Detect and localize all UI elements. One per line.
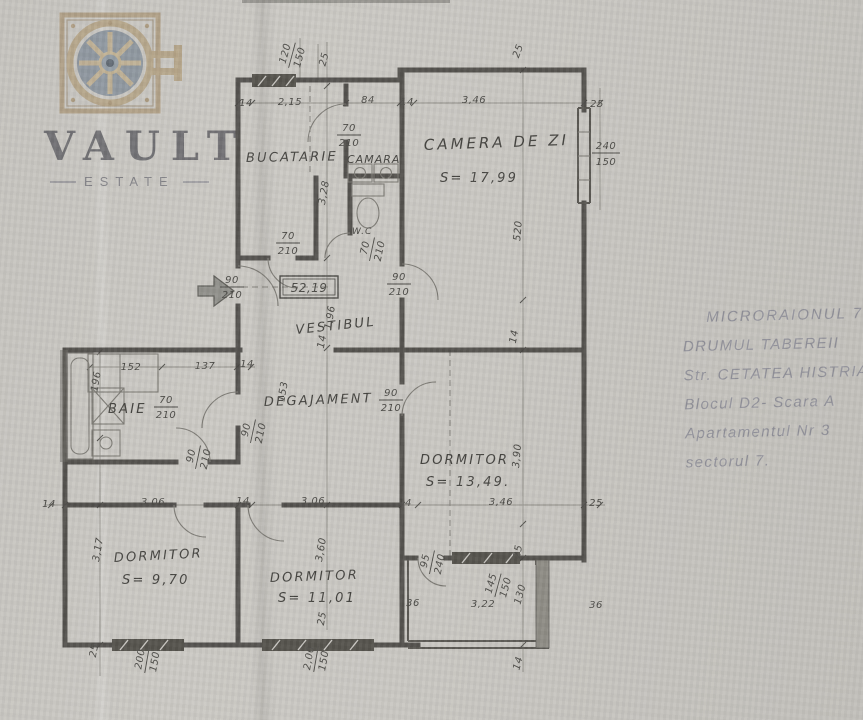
dim-balcony-36-right: 36 <box>589 600 603 611</box>
dim-dorm2-wall-25: 25 <box>316 611 329 626</box>
dim-top-25-right: 25 <box>511 43 526 60</box>
balcony-right-wall <box>536 560 549 648</box>
dim-bottom-6: 25 <box>589 498 603 509</box>
dim-kitchen-door: 70 210 <box>276 231 300 257</box>
room-area-dormitor3: S= 13,49. <box>426 475 510 490</box>
room-area-dormitor2: S= 11,01 <box>278 591 356 606</box>
room-labels: BUCATARIE CAMARA CAMERA DE ZI S= 17,99 W… <box>108 131 569 606</box>
note-line: sectorul 7. <box>685 444 863 478</box>
dim-baie-door: 70 210 <box>154 395 178 421</box>
dim-balcony-width: 3,22 <box>471 599 495 610</box>
svg-text:210: 210 <box>222 290 243 301</box>
room-label-bucatarie: BUCATARIE <box>246 149 338 166</box>
dim-dorm2-door: 90 210 <box>239 417 269 446</box>
dim-dorm1-depth: 3,17 <box>91 537 106 563</box>
dim-top-2: 84 <box>361 95 375 106</box>
dim-top-3: 14 <box>400 97 414 108</box>
dim-mid-0: 152 <box>121 362 142 373</box>
dim-top-25-left: 25 <box>317 51 331 67</box>
wall-hatch <box>60 350 68 462</box>
dim-right-wall-14: 14 <box>508 329 521 344</box>
dim-dorm3-door: 90 210 <box>379 388 403 414</box>
svg-text:90: 90 <box>384 388 398 399</box>
svg-text:150: 150 <box>292 46 308 69</box>
svg-text:210: 210 <box>278 246 299 257</box>
dim-mid-2: 14 <box>240 359 254 370</box>
bath-fixture <box>92 430 120 456</box>
svg-text:240: 240 <box>433 553 448 575</box>
note-line: Apartamentul Nr 3 <box>685 415 863 449</box>
dim-dorm1-door: 90 210 <box>184 443 214 472</box>
dim-bottom-3: 3,06 <box>301 496 325 507</box>
dim-right-window: 240 150 <box>592 141 620 168</box>
svg-text:90: 90 <box>185 448 199 464</box>
handwritten-address-notes: MICRORAIONUL 7 DRUMUL TABEREII Str. CETA… <box>682 299 863 478</box>
scanned-floor-plan-page: VAULT ESTATE <box>0 0 863 720</box>
svg-text:70: 70 <box>159 395 173 406</box>
dim-wc-door: 70 210 <box>358 235 388 264</box>
svg-text:120: 120 <box>278 42 294 65</box>
fixtures <box>60 164 398 462</box>
dim-bottom-5: 3,46 <box>489 497 513 508</box>
dim-bottom-2: 14 <box>236 496 250 507</box>
room-label-wc: W.C <box>352 227 372 237</box>
svg-text:90: 90 <box>225 275 239 286</box>
dim-kitchen-depth: 3,28 <box>317 180 332 206</box>
dim-camara-door: 70 210 <box>337 123 361 149</box>
dim-balcony-window: 145 150 <box>483 571 514 601</box>
svg-text:210: 210 <box>199 448 214 470</box>
dim-vestibul-wall: 14 <box>316 334 329 349</box>
dim-top-window: 120 150 <box>277 40 309 72</box>
dim-balcony-25: 25 <box>512 544 525 559</box>
dim-bottom-4: 14 <box>398 498 412 509</box>
room-label-dormitor3: DORMITOR <box>420 453 509 468</box>
dim-top-4: 3,46 <box>462 95 486 106</box>
svg-text:95: 95 <box>419 553 433 569</box>
svg-text:210: 210 <box>373 240 388 262</box>
room-area-dormitor1: S= 9,70 <box>122 573 190 588</box>
svg-text:210: 210 <box>381 403 402 414</box>
svg-text:210: 210 <box>156 410 177 421</box>
room-area-camera-de-zi: S= 17,99 <box>440 171 518 186</box>
svg-text:210: 210 <box>389 287 410 298</box>
note-line: Str. CETATEA HISTRIA <box>683 357 863 391</box>
dim-dorm1-wall-25: 25 <box>88 643 101 658</box>
svg-text:210: 210 <box>254 422 269 444</box>
toilet-tank <box>352 184 384 196</box>
dim-balcony-14: 14 <box>511 655 525 671</box>
dim-mid-1: 137 <box>195 361 216 372</box>
dim-living-door: 90 210 <box>387 272 411 298</box>
dim-top-1: 2,15 <box>278 97 302 108</box>
dim-living-height: 520 <box>512 220 525 241</box>
svg-text:150: 150 <box>596 157 617 168</box>
dim-balcony-depth: 130 <box>513 583 529 606</box>
dim-balcony-36-left: 36 <box>406 598 420 609</box>
svg-text:70: 70 <box>281 231 295 242</box>
room-label-baie: BAIE <box>108 402 147 417</box>
svg-text:90: 90 <box>392 272 406 283</box>
dim-bottom-1: 3,06 <box>141 497 165 508</box>
room-label-camera-de-zi: CAMERA DE ZI <box>424 131 570 154</box>
room-label-dormitor2: DORMITOR <box>270 568 360 586</box>
dim-top-0: 14 <box>239 98 253 109</box>
dim-top-5: 25 <box>590 99 604 110</box>
sink-right <box>374 164 398 182</box>
svg-text:70: 70 <box>359 240 373 256</box>
svg-text:70: 70 <box>342 123 356 134</box>
door-arcs <box>174 104 446 586</box>
note-line: DRUMUL TABEREII <box>683 328 863 362</box>
svg-text:90: 90 <box>240 422 254 438</box>
toilet-bowl <box>357 198 379 228</box>
svg-text:240: 240 <box>596 141 617 152</box>
dim-bottom-0: 14 <box>42 499 56 510</box>
note-line: Blocul D2- Scara A <box>684 386 863 420</box>
dim-dorm3-depth: 3,90 <box>511 443 524 468</box>
total-area-value: 52,19 <box>291 281 328 295</box>
dim-baie-depth: 196 <box>89 370 103 392</box>
room-label-camara: CAMARA <box>347 153 400 166</box>
note-line: MICRORAIONUL 7 <box>682 299 863 333</box>
svg-text:210: 210 <box>339 138 360 149</box>
svg-text:150: 150 <box>498 576 514 599</box>
svg-text:145: 145 <box>484 572 500 595</box>
svg-text:150: 150 <box>148 651 162 673</box>
svg-text:150: 150 <box>317 650 331 672</box>
room-label-dormitor1: DORMITOR <box>113 546 203 566</box>
